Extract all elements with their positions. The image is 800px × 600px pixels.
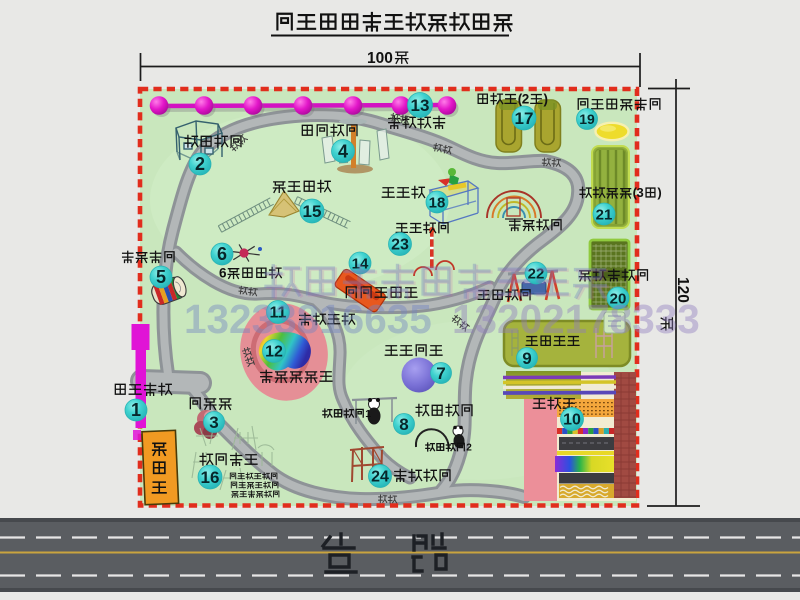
svg-text:100: 100 xyxy=(367,50,393,67)
svg-text:10: 10 xyxy=(563,412,581,429)
svg-text:24: 24 xyxy=(371,469,389,486)
svg-text:18: 18 xyxy=(429,194,446,211)
svg-text:8: 8 xyxy=(399,415,408,434)
svg-text:16: 16 xyxy=(201,468,220,487)
svg-text:9: 9 xyxy=(522,349,531,368)
svg-text:19: 19 xyxy=(579,111,595,127)
svg-text:12: 12 xyxy=(265,344,283,361)
svg-text:17: 17 xyxy=(515,109,534,128)
svg-text:2: 2 xyxy=(522,92,530,107)
svg-text:13202178333: 13202178333 xyxy=(452,296,700,342)
svg-text:13233816635: 13233816635 xyxy=(184,296,432,342)
svg-text:6: 6 xyxy=(217,244,227,264)
svg-text:5: 5 xyxy=(156,267,166,287)
svg-text:15: 15 xyxy=(303,202,322,221)
svg-text:7: 7 xyxy=(436,364,445,383)
svg-text:4: 4 xyxy=(338,142,348,162)
svg-text:3: 3 xyxy=(209,413,218,432)
svg-text:): ) xyxy=(544,92,549,107)
svg-text:1: 1 xyxy=(365,408,371,420)
svg-text:1: 1 xyxy=(131,400,141,420)
svg-text:2: 2 xyxy=(466,443,472,454)
svg-text:6: 6 xyxy=(219,266,227,281)
svg-text:21: 21 xyxy=(596,206,613,223)
svg-text:): ) xyxy=(657,185,661,200)
svg-text:2: 2 xyxy=(195,154,205,174)
svg-text:23: 23 xyxy=(391,237,409,254)
svg-text:13: 13 xyxy=(411,96,430,115)
svg-text:3: 3 xyxy=(637,185,644,200)
